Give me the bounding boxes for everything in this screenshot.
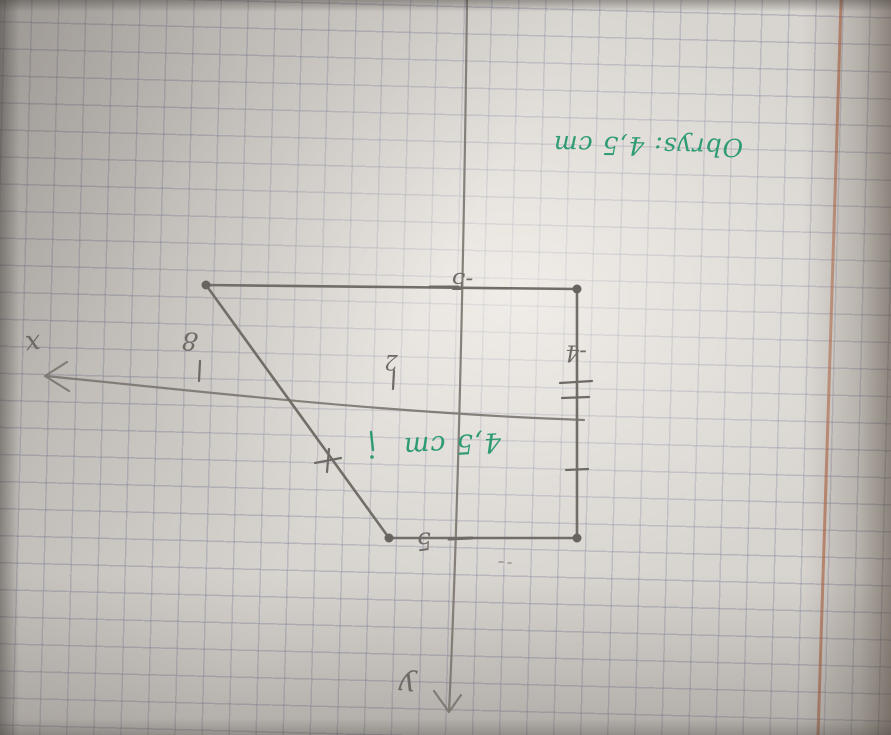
y-axis-line	[449, 0, 467, 712]
trapezoid-outline	[206, 285, 577, 538]
notebook-photo: x y -5 2 8 -4 5 Obrys: 4,5 cm 4,5 cm	[0, 0, 891, 735]
x-axis-line	[45, 376, 584, 420]
tick-y5	[449, 538, 472, 539]
pencil-drawing-svg	[0, 0, 891, 735]
tick-right-side	[566, 469, 588, 470]
tick-label-2: 2	[384, 350, 397, 374]
tick-marks	[199, 287, 592, 563]
tick-label-neg5: -5	[451, 267, 473, 293]
y-axis-arrow-icon	[434, 691, 461, 712]
faint-dots	[499, 562, 511, 563]
tick-label-neg4: -4	[565, 340, 586, 365]
segment-length-label: 4,5 cm	[402, 426, 502, 462]
tick-x8	[199, 361, 200, 381]
vertex-dot	[573, 285, 582, 294]
tick-label-8: 8	[181, 326, 200, 357]
x-axis-label: x	[24, 328, 42, 360]
vertex-dot	[385, 534, 394, 543]
green-exclaim-mark	[370, 432, 374, 459]
vertex-dot	[202, 281, 211, 290]
tick-slant-cross	[315, 449, 341, 472]
vertex-dot	[573, 534, 582, 543]
vertex-dots	[202, 281, 582, 543]
green-note: Obrys: 4,5 cm	[553, 130, 744, 162]
tick-xneg4-upper	[560, 381, 592, 383]
tick-xneg4-lower	[562, 397, 589, 398]
